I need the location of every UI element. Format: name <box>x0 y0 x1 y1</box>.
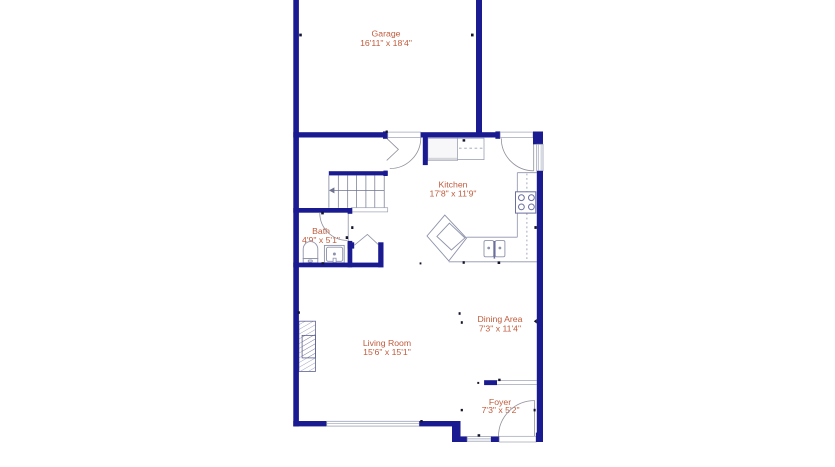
svg-text:16'11" x 18'4": 16'11" x 18'4" <box>360 38 412 48</box>
svg-text:15'6" x 15'1": 15'6" x 15'1" <box>363 347 411 357</box>
svg-text:17'8" x 11'9": 17'8" x 11'9" <box>430 189 477 199</box>
svg-text:7'3" x 5'2": 7'3" x 5'2" <box>482 405 520 415</box>
svg-text:7'3" x 11'4": 7'3" x 11'4" <box>479 323 521 333</box>
